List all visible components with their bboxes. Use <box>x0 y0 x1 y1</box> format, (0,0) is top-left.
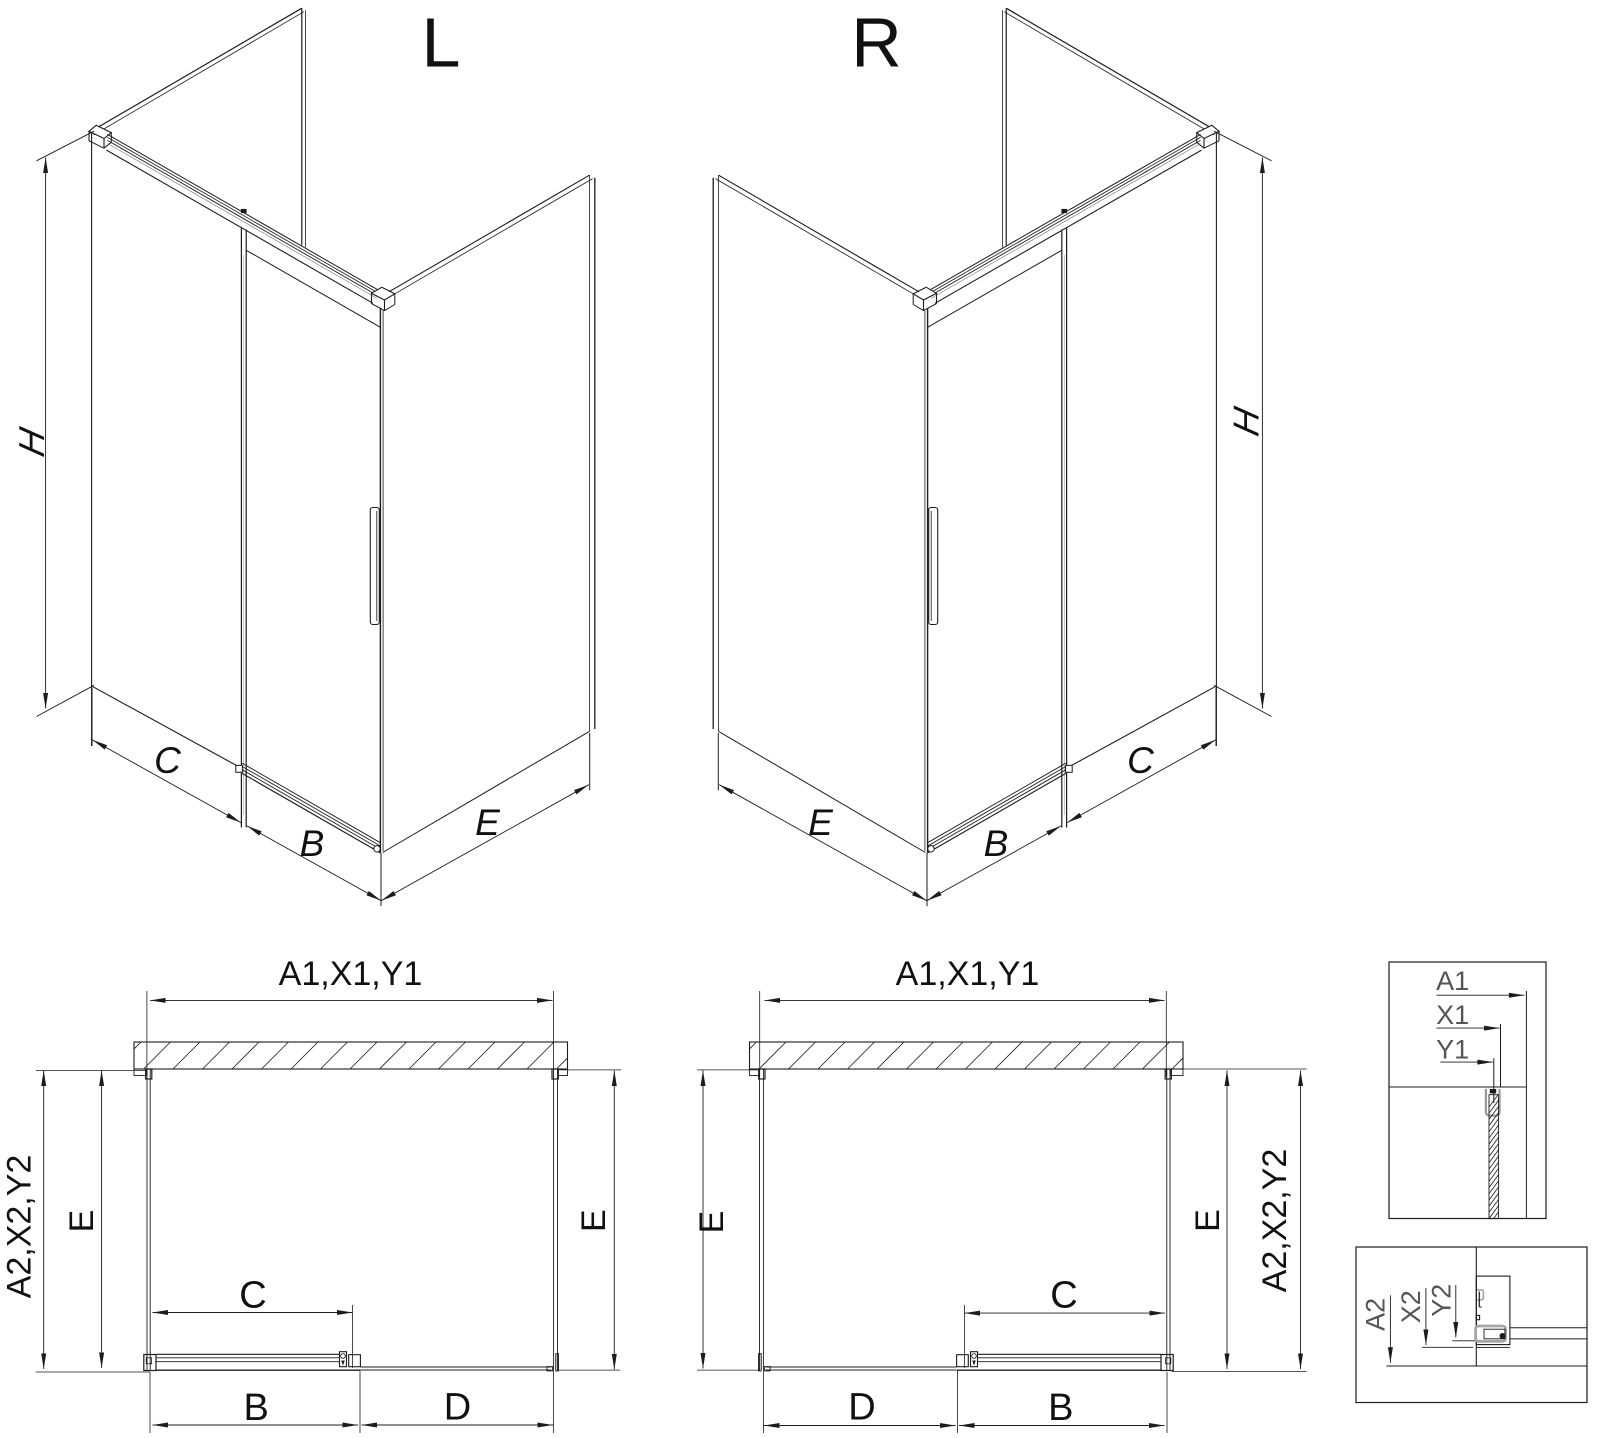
svg-text:A1,X1,Y1: A1,X1,Y1 <box>279 955 423 993</box>
svg-text:E: E <box>693 1211 731 1234</box>
svg-text:A1,X1,Y1: A1,X1,Y1 <box>896 955 1040 993</box>
svg-text:A2,X2,Y2: A2,X2,Y2 <box>1256 1149 1294 1293</box>
svg-text:C: C <box>239 1275 266 1317</box>
svg-text:A2,X2,Y2: A2,X2,Y2 <box>1 1155 39 1299</box>
svg-text:B: B <box>300 823 325 864</box>
svg-text:L: L <box>422 4 461 82</box>
svg-text:E: E <box>808 802 834 843</box>
svg-text:E: E <box>475 802 501 843</box>
svg-text:B: B <box>984 823 1009 864</box>
svg-text:C: C <box>154 740 181 781</box>
svg-text:A1: A1 <box>1436 966 1469 996</box>
svg-text:X1: X1 <box>1436 1000 1469 1030</box>
svg-text:Y1: Y1 <box>1436 1035 1469 1065</box>
svg-text:B: B <box>1048 1387 1073 1429</box>
svg-text:E: E <box>575 1209 613 1232</box>
svg-text:Y2: Y2 <box>1427 1284 1457 1317</box>
svg-text:A2: A2 <box>1360 1298 1390 1331</box>
svg-text:C: C <box>1127 740 1154 781</box>
svg-text:X2: X2 <box>1396 1290 1426 1323</box>
svg-text:E: E <box>63 1210 101 1233</box>
svg-text:B: B <box>244 1387 269 1429</box>
svg-text:C: C <box>1050 1275 1077 1317</box>
svg-text:D: D <box>848 1387 875 1429</box>
svg-text:R: R <box>851 4 902 82</box>
svg-text:D: D <box>444 1387 471 1429</box>
svg-text:E: E <box>1189 1209 1227 1232</box>
